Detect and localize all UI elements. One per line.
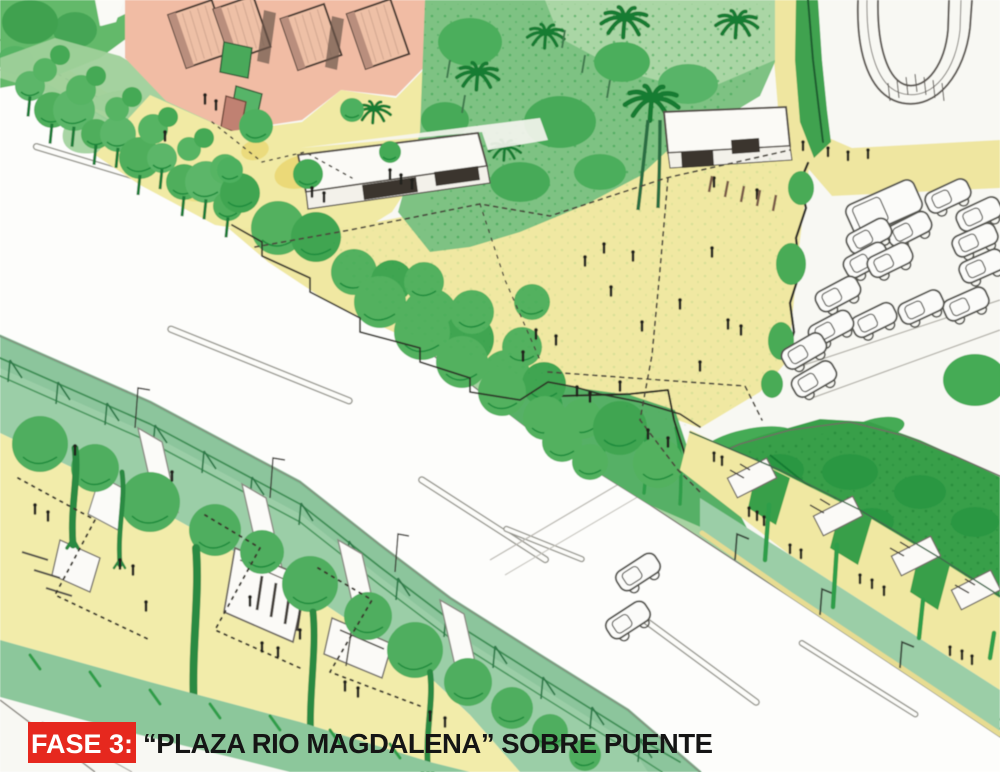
svg-text:“PLAZA RIO MAGDALENA” SOBRE PU: “PLAZA RIO MAGDALENA” SOBRE PUENTE	[143, 728, 713, 759]
svg-text:FASE 3:: FASE 3:	[31, 729, 133, 759]
